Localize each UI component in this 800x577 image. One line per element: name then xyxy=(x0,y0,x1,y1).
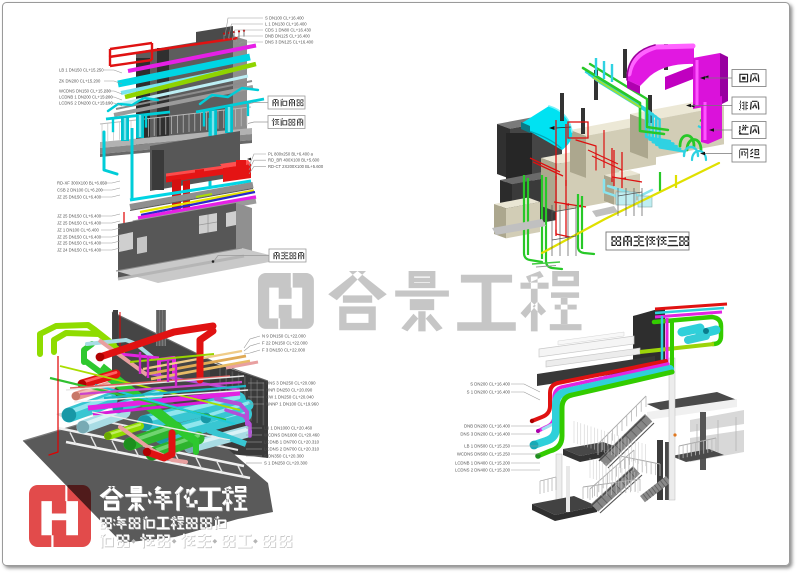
svg-text:JZ 25 DN150 CL+6.400: JZ 25 DN150 CL+6.400 xyxy=(57,214,102,219)
svg-text:JZ 24 DN150 CL+6.400: JZ 24 DN150 CL+6.400 xyxy=(57,248,102,253)
svg-text:HNR DN250 CL+20.090: HNR DN250 CL+20.090 xyxy=(266,388,313,393)
svg-text:LB 1 DN1000 CL+20.460: LB 1 DN1000 CL+20.460 xyxy=(264,426,313,431)
svg-text:JZ 25 DN150 CL+6.400: JZ 25 DN150 CL+6.400 xyxy=(57,195,102,200)
svg-text:RD_BR 400X100 BL+5.600: RD_BR 400X100 BL+5.600 xyxy=(268,158,320,163)
svg-text:S 1 DN250 CL+20.300: S 1 DN250 CL+20.300 xyxy=(264,461,308,466)
svg-text:N 9 DN150 CL+22.000: N 9 DN150 CL+22.000 xyxy=(262,334,306,339)
svg-text:DNB DN200 CL+16.400: DNB DN200 CL+16.400 xyxy=(464,424,511,429)
svg-text:DNS 3 DN200 CL+16.400: DNS 3 DN200 CL+16.400 xyxy=(460,432,510,437)
svg-text:JZ 25 DN150 CL+6.400: JZ 25 DN150 CL+6.400 xyxy=(57,235,102,240)
svg-text:F 3 DN150 CL+22.000: F 3 DN150 CL+22.000 xyxy=(262,348,306,353)
svg-text:LCDNB 1 DN400 CL+15.200: LCDNB 1 DN400 CL+15.200 xyxy=(455,461,511,466)
svg-text:RD-CT 2X200X100 BL+5.600: RD-CT 2X200X100 BL+5.600 xyxy=(268,164,324,169)
svg-text:ZK DN200 CL+15.200: ZK DN200 CL+15.200 xyxy=(59,79,101,84)
svg-text:S DN100 CL+16.400: S DN100 CL+16.400 xyxy=(265,16,304,21)
svg-text:LB 1 DN500 CL+15.250: LB 1 DN500 CL+15.250 xyxy=(464,444,510,449)
svg-text:S DN350 CL+20.300: S DN350 CL+20.300 xyxy=(264,454,304,459)
svg-text:WCDNS DN500 CL+15.250: WCDNS DN500 CL+15.250 xyxy=(457,452,511,457)
svg-text:DNB DN125 CL+16.400: DNB DN125 CL+16.400 xyxy=(265,34,310,39)
svg-text:LCDNS 2 DN700 CL+20.310: LCDNS 2 DN700 CL+20.310 xyxy=(264,447,320,452)
svg-text:S DN200 CL+16.400: S DN200 CL+16.400 xyxy=(470,382,510,387)
svg-text:S 1 DN200 CL+16.400: S 1 DN200 CL+16.400 xyxy=(467,390,511,395)
svg-text:LCDNB 1 DN700 CL+20.310: LCDNB 1 DN700 CL+20.310 xyxy=(264,440,320,445)
svg-text:LCDNS 2 DN400 CL+15.200: LCDNS 2 DN400 CL+15.200 xyxy=(455,468,511,473)
svg-text:HNS 3 DN250 CL+20.090: HNS 3 DN250 CL+20.090 xyxy=(266,381,316,386)
svg-text:CSB 2 DN100 CL+6.200: CSB 2 DN100 CL+6.200 xyxy=(57,188,103,193)
svg-text:L 1 DN130 CL+16.400: L 1 DN130 CL+16.400 xyxy=(265,22,307,27)
svg-text:NNNP 1 DN100 CL+19.960: NNNP 1 DN100 CL+19.960 xyxy=(266,402,319,407)
svg-text:WCDNS DN1000 CL+20.460: WCDNS DN1000 CL+20.460 xyxy=(264,433,320,438)
svg-text:F 22 DN150 CL+22.000: F 22 DN150 CL+22.000 xyxy=(262,341,308,346)
svg-text:CDS 1 DN80 CL+16.430: CDS 1 DN80 CL+16.430 xyxy=(265,28,312,33)
svg-text:PL 800x250 BL+6.400 a: PL 800x250 BL+6.400 a xyxy=(268,152,314,157)
svg-text:CW 1 DN250 CL+20.040: CW 1 DN250 CL+20.040 xyxy=(266,395,314,400)
svg-text:DNS 3 DN125 CL+16.400: DNS 3 DN125 CL+16.400 xyxy=(265,40,314,45)
svg-text:RD-XF 300X100 BL+6.650: RD-XF 300X100 BL+6.650 xyxy=(57,181,108,186)
svg-text:JZ 25 DN150 CL+6.400: JZ 25 DN150 CL+6.400 xyxy=(57,241,102,246)
svg-text:LB 1 DN150 CL+15.250: LB 1 DN150 CL+15.250 xyxy=(59,68,104,73)
svg-text:WCDNS DN150 CL+15.230: WCDNS DN150 CL+15.230 xyxy=(59,89,111,94)
svg-text:JZ 1 DN100 CL+6.400: JZ 1 DN100 CL+6.400 xyxy=(57,228,99,233)
svg-text:JZ 25 DN150 CL+6.400: JZ 25 DN150 CL+6.400 xyxy=(57,221,102,226)
